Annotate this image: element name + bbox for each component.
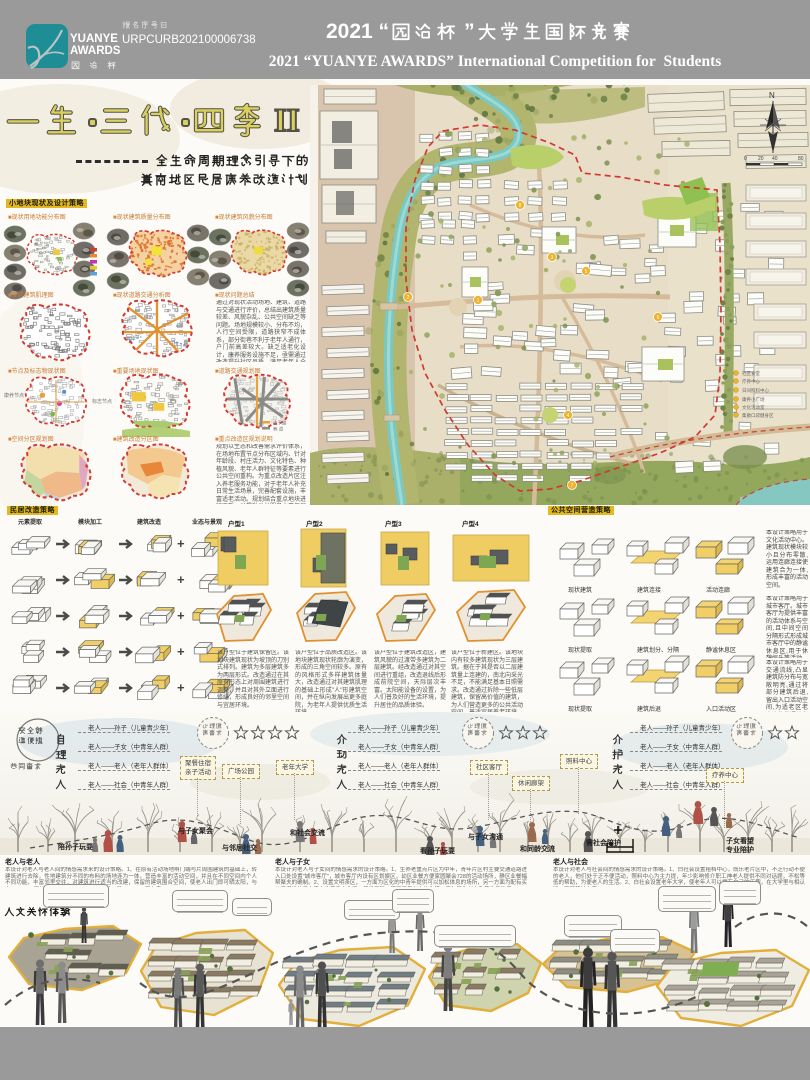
svg-text:N: N	[769, 91, 775, 100]
svg-text:社区食堂: 社区食堂	[742, 370, 760, 377]
svg-text:文化活动室: 文化活动室	[742, 404, 765, 411]
svg-text:0: 0	[744, 156, 747, 162]
svg-text:1: 1	[477, 298, 480, 304]
svg-text:7: 7	[571, 483, 574, 489]
svg-text:80: 80	[798, 156, 804, 162]
svg-text:3: 3	[551, 255, 554, 261]
svg-text:40: 40	[772, 156, 778, 162]
svg-text:5: 5	[585, 269, 588, 275]
svg-text:20: 20	[758, 156, 764, 162]
svg-text:康养小广场: 康养小广场	[742, 396, 765, 403]
svg-text:6: 6	[657, 315, 660, 321]
svg-text:8: 8	[519, 203, 522, 209]
svg-text:疗养中心: 疗养中心	[742, 378, 760, 385]
svg-text:集散口袋健身区: 集散口袋健身区	[742, 412, 774, 419]
svg-text:日间照料中心: 日间照料中心	[742, 387, 769, 394]
svg-text:2: 2	[407, 295, 410, 301]
svg-text:巷 道: 巷 道	[273, 426, 284, 433]
svg-text:4: 4	[567, 413, 570, 419]
